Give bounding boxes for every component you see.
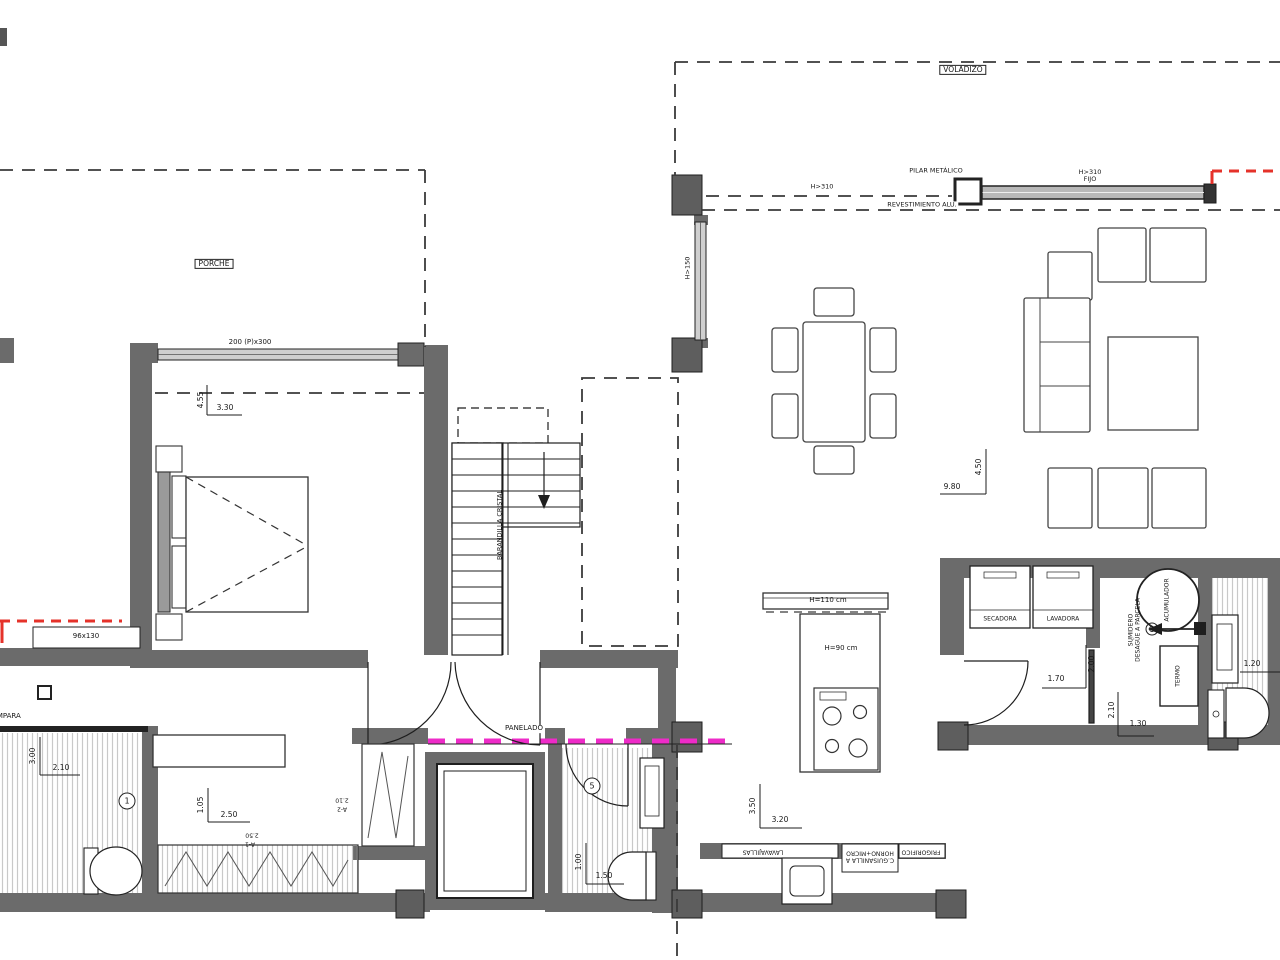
sumidero-line2: DESAGÜE A PARCELA bbox=[1135, 598, 1142, 662]
dim-laundry-w: 1.70 bbox=[1048, 675, 1065, 683]
side-table bbox=[1048, 252, 1092, 300]
dressing-room bbox=[153, 735, 414, 893]
dim-kitchen-h: 3.50 bbox=[749, 798, 757, 815]
floor-plan-canvas: VOLADIZO H>310 PILAR METÁLICO H>310 FIJO… bbox=[0, 0, 1280, 960]
counter bbox=[153, 735, 285, 767]
panelado-line bbox=[428, 741, 732, 744]
dining-set bbox=[772, 288, 896, 474]
nightstand bbox=[156, 614, 182, 640]
voladizo-label: VOLADIZO bbox=[939, 65, 986, 75]
dim-living-h: 4.50 bbox=[975, 459, 983, 476]
pilar-metalico-label: PILAR METÁLICO bbox=[909, 167, 962, 174]
panelado-label: PANELADO bbox=[503, 725, 545, 733]
kitchen-mid-line2: HORNO+MICRO bbox=[846, 849, 894, 856]
fijo-line2: FIJO bbox=[1084, 176, 1097, 183]
dim-laundry-h: 2.00 bbox=[1088, 656, 1096, 673]
chair bbox=[772, 394, 798, 438]
h150-label: H>150 bbox=[684, 257, 691, 280]
dim-dressing-w: 2.50 bbox=[221, 811, 238, 819]
dim-shaft-w: 2.10 bbox=[335, 796, 348, 803]
dim-bath-right-w: 1.20 bbox=[1244, 660, 1261, 668]
dim-boiler-h: 2.10 bbox=[1108, 702, 1116, 719]
dim-bath-center-h: 1.00 bbox=[575, 854, 583, 871]
armchair bbox=[1098, 228, 1146, 282]
armchair bbox=[1048, 468, 1092, 528]
dim-living-w: 9.80 bbox=[944, 483, 961, 491]
room-ref-5: 5 bbox=[584, 778, 601, 795]
termo-label: TERMO bbox=[1176, 665, 1183, 687]
bar-height-label: H=110 cm bbox=[809, 597, 846, 605]
lavadora-label: LAVADORA bbox=[1047, 617, 1079, 624]
h310-label: H>310 bbox=[811, 183, 834, 190]
secadora-label: SECADORA bbox=[983, 617, 1016, 624]
porche-label: PORCHE bbox=[195, 259, 234, 269]
acumulador-label: ACUMULADOR bbox=[1165, 578, 1172, 621]
chair bbox=[814, 446, 854, 474]
coffee-table bbox=[1108, 337, 1198, 430]
elevator bbox=[425, 752, 545, 910]
nightstand bbox=[156, 446, 182, 472]
sumidero-label: SUMIDERO DESAGÜE A PARCELA bbox=[1128, 598, 1141, 662]
dim-kitchen-w: 3.20 bbox=[772, 816, 789, 824]
dim-dressing-w2: 2.50 bbox=[245, 831, 258, 838]
barandilla-label: BARANDILLA CRISTAL bbox=[496, 490, 503, 560]
dim-bath-left-w: 2.10 bbox=[53, 764, 70, 772]
headboard bbox=[158, 472, 170, 612]
bedroom-window-size-label: 200 (P)x300 bbox=[229, 339, 272, 347]
toilet-left bbox=[90, 847, 142, 895]
toilet-tank bbox=[646, 852, 656, 900]
kitchen-mid-line1: C.GUISANILLA A bbox=[846, 856, 894, 863]
island-height-label: H=90 cm bbox=[825, 645, 858, 653]
dim-bedroom-w: 3.30 bbox=[217, 404, 234, 412]
ref-a1-label: A-1 bbox=[245, 840, 255, 847]
shaft bbox=[362, 744, 414, 846]
mampara-label: MAMPARA bbox=[0, 713, 21, 721]
kitchen-mid-label: C.GUISANILLA A HORNO+MICRO bbox=[846, 849, 894, 862]
armchair bbox=[1150, 228, 1206, 282]
ref-a2-label: A-2 bbox=[337, 805, 347, 812]
ceiling-symbol bbox=[38, 686, 51, 699]
dim-dressing-h: 1.05 bbox=[197, 797, 205, 814]
toilet-tank bbox=[1208, 690, 1224, 738]
bed-outline bbox=[186, 477, 308, 612]
dining-table bbox=[803, 322, 865, 442]
wardrobe bbox=[158, 845, 358, 893]
bath-window-size-label: 96x130 bbox=[73, 633, 99, 641]
armchair bbox=[1152, 468, 1206, 528]
steel-pillar bbox=[955, 179, 981, 204]
dim-bath-center-w: 1.50 bbox=[596, 872, 613, 880]
dim-boiler-w: 1.30 bbox=[1130, 720, 1147, 728]
pillow bbox=[172, 546, 186, 608]
chair bbox=[814, 288, 854, 316]
sofa-group bbox=[1024, 228, 1206, 528]
toilet-right bbox=[1226, 688, 1269, 738]
pillow bbox=[172, 476, 186, 538]
armchair bbox=[1098, 468, 1148, 528]
dim-bath-left-h: 3.00 bbox=[29, 748, 37, 765]
fijo-label: H>310 FIJO bbox=[1079, 169, 1102, 183]
chair bbox=[870, 328, 896, 372]
chair bbox=[870, 394, 896, 438]
kitchen-island bbox=[763, 593, 888, 772]
revestimiento-label: REVESTIMIENTO ALU. bbox=[885, 201, 958, 208]
room-ref-1: 1 bbox=[119, 793, 136, 810]
kitchen-right-label: FRIGORIFICO bbox=[902, 848, 941, 855]
shower-screen bbox=[0, 726, 148, 732]
sofa bbox=[1024, 298, 1090, 432]
floor-plan-drawing bbox=[0, 0, 1280, 960]
chair bbox=[772, 328, 798, 372]
dim-bedroom-h: 4.55 bbox=[197, 392, 205, 409]
stairs bbox=[452, 408, 580, 655]
kitchen-left-label: LAVAVAJILLAS bbox=[743, 848, 784, 855]
bed bbox=[156, 446, 308, 640]
